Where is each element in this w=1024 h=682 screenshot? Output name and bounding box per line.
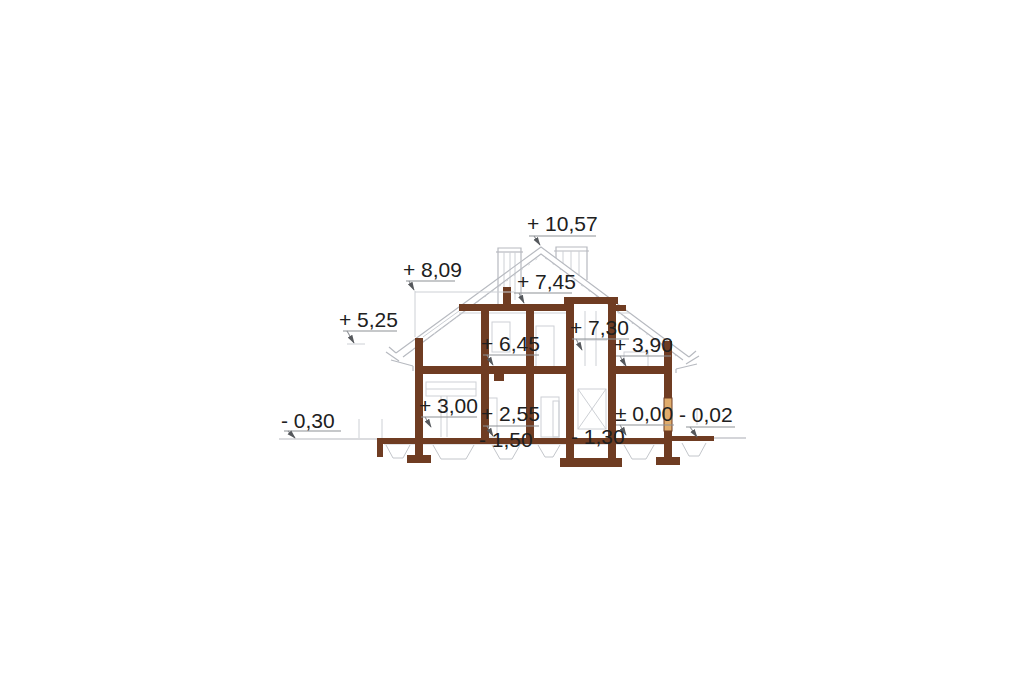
- level-label-storey-left: + 3,00: [419, 394, 478, 417]
- attic-floor-slab: [419, 366, 672, 381]
- level-label-eave-left: + 5,25: [339, 308, 398, 331]
- level-label-grade-left: - 0,30: [281, 409, 335, 432]
- purlin-beam-section: [494, 374, 504, 381]
- page: + 10,57 + 8,09 + 7,45 + 7,30 + 5,25 + 6,…: [0, 0, 1024, 682]
- level-label-attic-collar: + 7,45: [517, 270, 576, 293]
- level-label-storey-mid: + 2,55: [481, 402, 540, 425]
- cross-section-drawing: + 10,57 + 8,09 + 7,45 + 7,30 + 5,25 + 6,…: [0, 0, 1024, 682]
- entry-step-left: [377, 438, 417, 457]
- foundation-hatch: [384, 443, 706, 459]
- level-label-terrace-right: - 0,02: [679, 403, 733, 426]
- level-label-ridge: + 10,57: [527, 212, 598, 235]
- level-label-roof-left: + 8,09: [403, 258, 462, 281]
- ridge-post: [503, 287, 511, 304]
- level-label-attic-interior: + 6,45: [481, 332, 540, 355]
- chimney-footing: [560, 458, 622, 467]
- chimney-cap-beam: [564, 297, 618, 304]
- ground-floor-slab: [417, 438, 669, 444]
- level-label-foundation-mid: - 1,50: [479, 428, 533, 451]
- terrace-slab-right: [669, 436, 714, 441]
- level-label-foundation-chimney: - 1,30: [571, 425, 625, 448]
- level-label-ground-zero: ± 0,00: [615, 402, 673, 425]
- right-eave-gutter: [676, 351, 699, 373]
- level-label-attic-right: + 3,90: [614, 333, 673, 356]
